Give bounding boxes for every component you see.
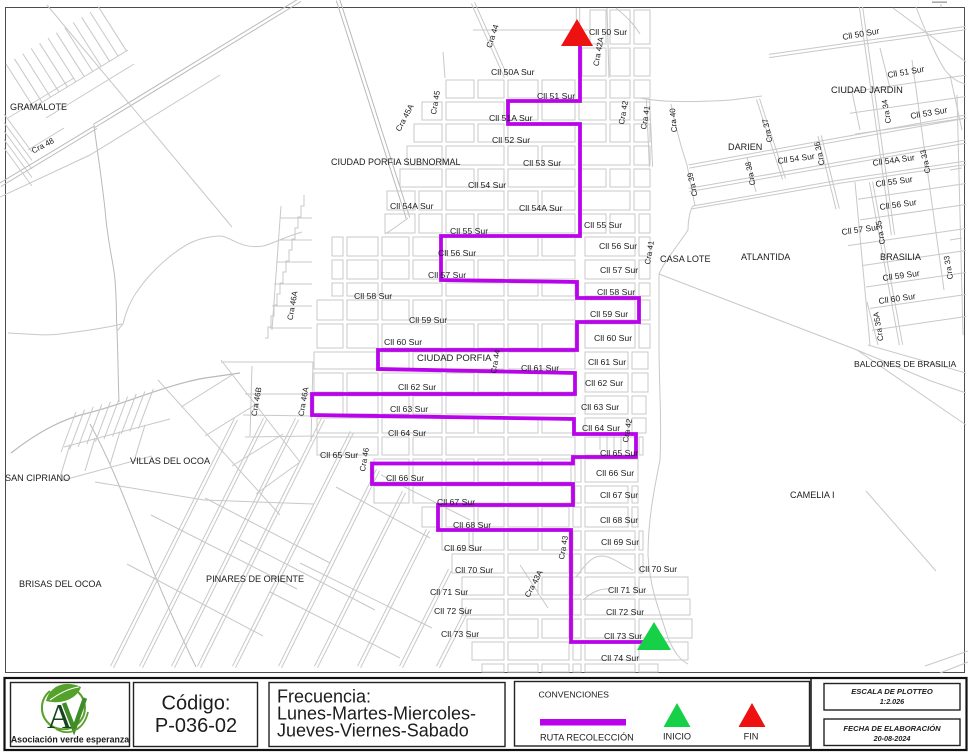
svg-text:VILLAS DEL OCOA: VILLAS DEL OCOA (130, 456, 211, 466)
svg-text:Jueves-Viernes-Sabado: Jueves-Viernes-Sabado (277, 721, 469, 741)
svg-text:RUTA RECOLECCIÓN: RUTA RECOLECCIÓN (540, 733, 634, 743)
svg-text:20-08-2024: 20-08-2024 (873, 734, 911, 743)
svg-text:Cll 66 Sur: Cll 66 Sur (386, 473, 424, 483)
svg-text:ESCALA DE PLOTTEO: ESCALA DE PLOTTEO (851, 687, 933, 696)
svg-text:Cll 63 Sur: Cll 63 Sur (390, 404, 428, 414)
svg-text:Cll 66 Sur: Cll 66 Sur (596, 468, 634, 478)
svg-text:Cll 72 Sur: Cll 72 Sur (606, 607, 644, 617)
svg-text:Cll 54A Sur: Cll 54A Sur (519, 203, 563, 213)
svg-text:Cll 73 Sur: Cll 73 Sur (604, 631, 642, 641)
svg-text:Cll 68 Sur: Cll 68 Sur (600, 515, 638, 525)
svg-text:Cll 71 Sur: Cll 71 Sur (430, 587, 468, 597)
svg-text:GRAMALOTE: GRAMALOTE (10, 102, 67, 112)
svg-text:CIUDAD PORFIA SUBNORMAL: CIUDAD PORFIA SUBNORMAL (331, 157, 461, 167)
svg-text:CASA LOTE: CASA LOTE (660, 254, 711, 264)
svg-text:Cll 71 Sur: Cll 71 Sur (608, 585, 646, 595)
svg-text:P-036-02: P-036-02 (155, 715, 237, 737)
svg-text:Cll 53 Sur: Cll 53 Sur (523, 158, 561, 168)
svg-text:BRASILIA: BRASILIA (880, 252, 922, 262)
svg-text:Cll 62 Sur: Cll 62 Sur (585, 378, 623, 388)
svg-text:Cll 69 Sur: Cll 69 Sur (444, 543, 482, 553)
svg-text:Cll 61 Sur: Cll 61 Sur (521, 363, 559, 373)
svg-text:Cll 60 Sur: Cll 60 Sur (594, 333, 632, 343)
svg-text:FECHA DE ELABORACIÓN: FECHA DE ELABORACIÓN (843, 724, 941, 733)
svg-text:Cll 52 Sur: Cll 52 Sur (492, 135, 530, 145)
svg-text:Cll 51A Sur: Cll 51A Sur (489, 113, 533, 123)
svg-text:Cll 67 Sur: Cll 67 Sur (600, 490, 638, 500)
svg-text:Cll 62 Sur: Cll 62 Sur (398, 382, 436, 392)
svg-text:Código:: Código: (162, 693, 231, 715)
svg-text:Cll 60 Sur: Cll 60 Sur (384, 337, 422, 347)
svg-text:Cll 58 Sur: Cll 58 Sur (354, 291, 392, 301)
svg-text:Cll 56 Sur: Cll 56 Sur (599, 241, 637, 251)
svg-text:1:2.026: 1:2.026 (880, 697, 905, 706)
svg-text:Cll 54A Sur: Cll 54A Sur (390, 201, 434, 211)
svg-text:Cll 74 Sur: Cll 74 Sur (601, 653, 639, 663)
svg-text:Cll 61 Sur: Cll 61 Sur (588, 357, 626, 367)
svg-text:Cll 73 Sur: Cll 73 Sur (441, 629, 479, 639)
svg-text:Cll 57 Sur: Cll 57 Sur (600, 265, 638, 275)
svg-text:PINARES DE ORIENTE: PINARES DE ORIENTE (206, 574, 304, 584)
svg-text:Cll 69 Sur: Cll 69 Sur (601, 537, 639, 547)
svg-text:BRISAS DEL OCOA: BRISAS DEL OCOA (19, 579, 102, 589)
svg-text:CAMELIA I: CAMELIA I (790, 490, 834, 500)
svg-text:Cll 54 Sur: Cll 54 Sur (468, 180, 506, 190)
svg-text:Cll 65 Sur: Cll 65 Sur (600, 448, 638, 458)
svg-text:Cll 59 Sur: Cll 59 Sur (409, 315, 447, 325)
svg-text:Cll 55 Sur: Cll 55 Sur (450, 226, 488, 236)
svg-text:BALCONES DE BRASILIA: BALCONES DE BRASILIA (854, 359, 956, 369)
svg-text:Cll 72 Sur: Cll 72 Sur (434, 606, 472, 616)
svg-text:Cll 57 Sur: Cll 57 Sur (428, 270, 466, 280)
svg-text:Cll 58 Sur: Cll 58 Sur (597, 287, 635, 297)
svg-text:SAN CIPRIANO: SAN CIPRIANO (5, 473, 70, 483)
svg-text:Cll 64 Sur: Cll 64 Sur (388, 428, 426, 438)
svg-text:CONVENCIONES: CONVENCIONES (539, 690, 610, 700)
svg-text:Cll 50 Sur: Cll 50 Sur (589, 27, 627, 37)
svg-text:FIN: FIN (744, 732, 759, 742)
svg-text:DARIEN: DARIEN (728, 142, 762, 152)
svg-text:ATLANTIDA: ATLANTIDA (741, 252, 791, 262)
svg-text:Cll 68 Sur: Cll 68 Sur (453, 520, 491, 530)
svg-text:Cll 59 Sur: Cll 59 Sur (590, 309, 628, 319)
svg-text:Cll 70 Sur: Cll 70 Sur (455, 565, 493, 575)
svg-text:Asociación verde esperanza: Asociación verde esperanza (11, 735, 129, 745)
svg-text:Cll 56 Sur: Cll 56 Sur (438, 248, 476, 258)
svg-text:Cll 50A Sur: Cll 50A Sur (491, 67, 535, 77)
svg-text:Cll 65 Sur: Cll 65 Sur (320, 450, 358, 460)
svg-text:Cll 64 Sur: Cll 64 Sur (582, 423, 620, 433)
svg-text:CIUDAD PORFIA: CIUDAD PORFIA (417, 353, 492, 364)
svg-text:Cll 67 Sur: Cll 67 Sur (437, 497, 475, 507)
svg-text:CIUDAD JARDIN: CIUDAD JARDIN (831, 85, 903, 95)
svg-text:Cll 55 Sur: Cll 55 Sur (584, 220, 622, 230)
svg-text:Cll 51 Sur: Cll 51 Sur (537, 91, 575, 101)
svg-text:INICIO: INICIO (663, 732, 691, 742)
svg-text:Cll 63 Sur: Cll 63 Sur (581, 402, 619, 412)
svg-text:Cll 70 Sur: Cll 70 Sur (639, 564, 677, 574)
